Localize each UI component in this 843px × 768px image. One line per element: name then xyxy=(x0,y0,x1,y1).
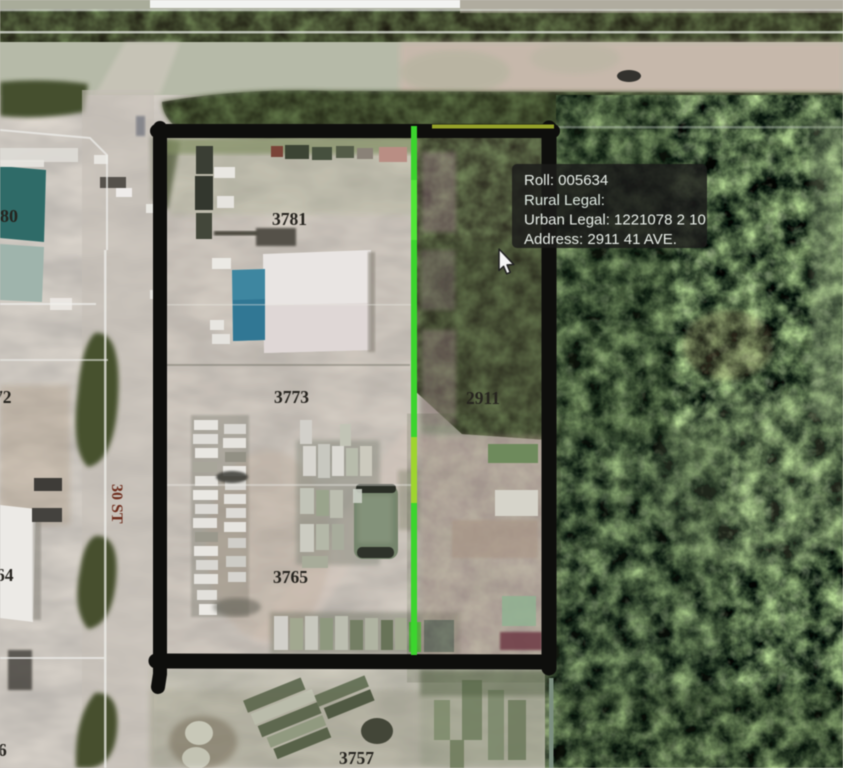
svg-text:Urban Legal: 1221078 2 10: Urban Legal: 1221078 2 10 xyxy=(524,212,706,229)
svg-text:2911: 2911 xyxy=(466,388,500,408)
svg-text:Address: 2911 41 AVE.: Address: 2911 41 AVE. xyxy=(524,231,677,248)
svg-text:6: 6 xyxy=(0,740,7,760)
svg-text:3765: 3765 xyxy=(273,567,308,587)
svg-text:64: 64 xyxy=(0,565,14,585)
svg-text:Rural Legal:: Rural Legal: xyxy=(524,192,605,209)
svg-text:3773: 3773 xyxy=(274,387,309,407)
svg-text:3757: 3757 xyxy=(339,748,374,768)
svg-text:30 ST: 30 ST xyxy=(108,484,125,524)
svg-text:72: 72 xyxy=(0,387,12,407)
svg-text:Roll: 005634: Roll: 005634 xyxy=(524,172,608,189)
svg-text:3781: 3781 xyxy=(272,209,307,229)
svg-text:80: 80 xyxy=(0,206,18,226)
